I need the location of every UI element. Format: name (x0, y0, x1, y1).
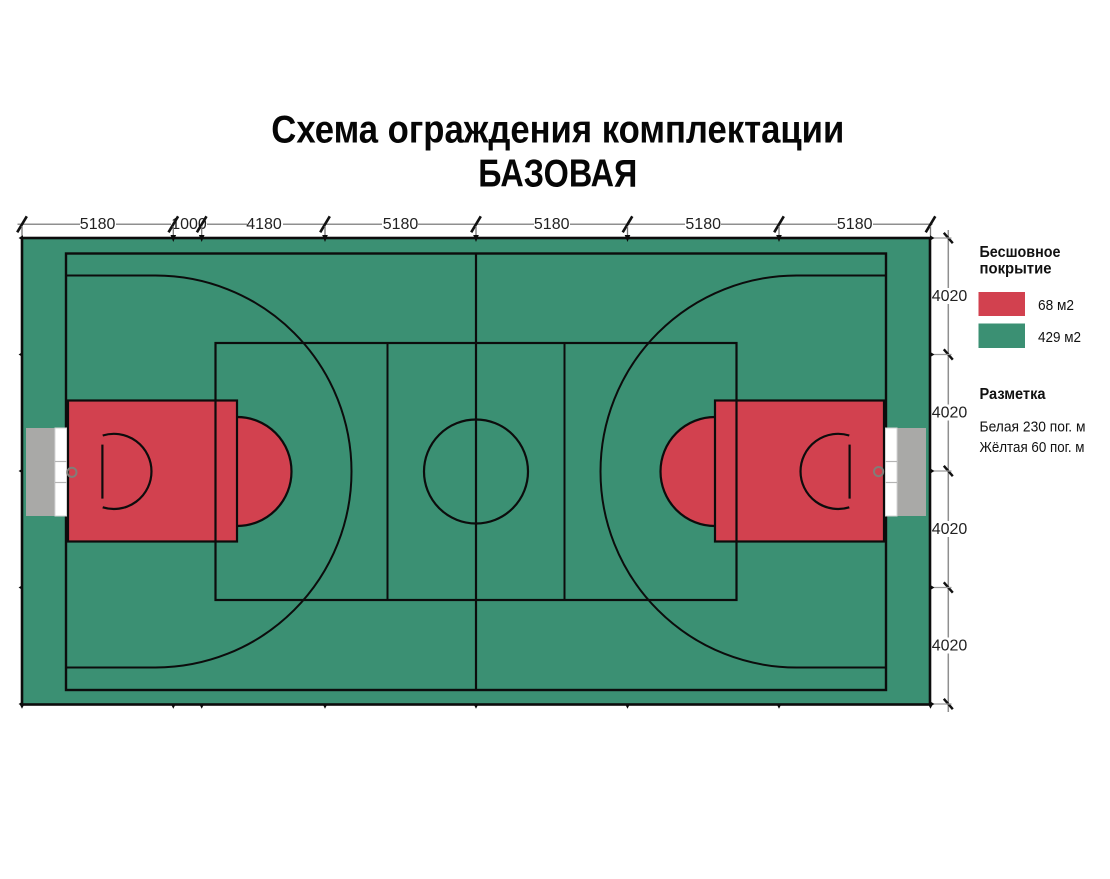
svg-text:4020: 4020 (932, 638, 968, 655)
svg-text:БАЗОВАЯ: БАЗОВАЯ (478, 153, 637, 196)
svg-text:Бесшовное: Бесшовное (980, 244, 1061, 261)
svg-text:5180: 5180 (80, 216, 116, 233)
svg-text:68 м2: 68 м2 (1038, 297, 1074, 314)
svg-text:4020: 4020 (932, 521, 968, 538)
svg-text:5180: 5180 (383, 216, 419, 233)
svg-text:4180: 4180 (246, 216, 282, 233)
svg-text:Разметка: Разметка (980, 386, 1046, 403)
svg-text:покрытие: покрытие (980, 261, 1052, 278)
svg-text:Схема ограждения комплектации: Схема ограждения комплектации (271, 109, 844, 152)
svg-text:5180: 5180 (534, 216, 570, 233)
svg-text:Жёлтая 60 пог. м: Жёлтая 60 пог. м (980, 439, 1085, 456)
svg-text:4020: 4020 (932, 288, 968, 305)
svg-text:429 м2: 429 м2 (1038, 329, 1081, 346)
svg-text:4020: 4020 (932, 405, 968, 422)
svg-text:Белая 230 пог. м: Белая 230 пог. м (980, 419, 1086, 436)
svg-text:5180: 5180 (837, 216, 873, 233)
svg-text:5180: 5180 (685, 216, 721, 233)
